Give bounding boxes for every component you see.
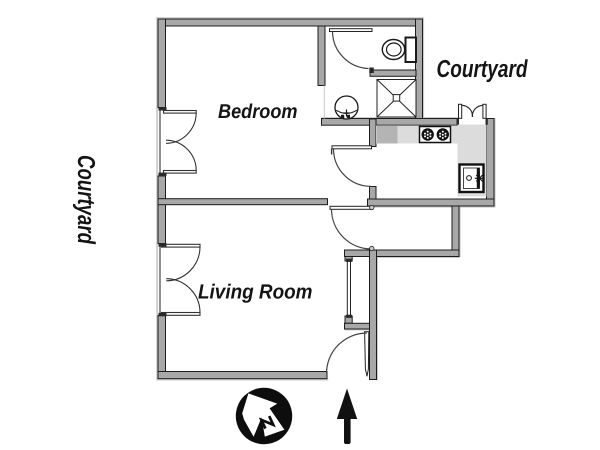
svg-text:Courtyard: Courtyard [437,56,529,83]
svg-text:Courtyard: Courtyard [72,155,99,245]
svg-text:Bedroom: Bedroom [218,101,298,123]
svg-text:Living Room: Living Room [198,280,313,303]
